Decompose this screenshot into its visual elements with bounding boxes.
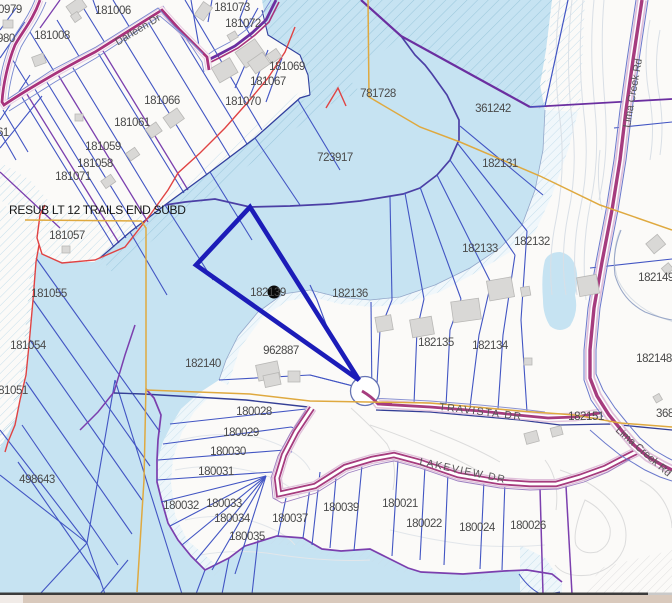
svg-text:181054: 181054: [10, 340, 47, 352]
svg-text:182132: 182132: [514, 236, 550, 248]
svg-text:181069: 181069: [269, 61, 305, 73]
svg-text:180961: 180961: [0, 127, 9, 139]
svg-text:180035: 180035: [229, 531, 265, 543]
svg-text:180028: 180028: [236, 406, 272, 418]
svg-text:361242: 361242: [475, 103, 511, 115]
svg-text:180030: 180030: [210, 446, 246, 458]
svg-text:181055: 181055: [31, 288, 67, 300]
svg-text:180039: 180039: [323, 502, 359, 514]
svg-text:180034: 180034: [214, 513, 251, 525]
svg-text:962887: 962887: [263, 345, 299, 357]
svg-text:180021: 180021: [382, 498, 418, 510]
svg-text:180031: 180031: [198, 466, 234, 478]
svg-text:182139: 182139: [250, 287, 286, 299]
svg-text:36842: 36842: [656, 408, 672, 420]
svg-text:181058: 181058: [77, 158, 113, 170]
svg-text:180032: 180032: [163, 500, 199, 512]
svg-text:180026: 180026: [510, 520, 546, 532]
svg-text:180979: 180979: [0, 4, 22, 16]
svg-text:RESUB LT 12 TRAILS END SUBD: RESUB LT 12 TRAILS END SUBD: [9, 203, 186, 217]
svg-text:182134: 182134: [472, 340, 509, 352]
svg-text:182136: 182136: [332, 288, 368, 300]
svg-text:180029: 180029: [223, 427, 259, 439]
svg-text:180037: 180037: [272, 513, 308, 525]
svg-text:181006: 181006: [95, 5, 131, 17]
svg-text:498643: 498643: [19, 474, 55, 486]
svg-text:182149: 182149: [638, 272, 672, 284]
svg-text:182131: 182131: [482, 158, 518, 170]
svg-text:181008: 181008: [34, 30, 70, 42]
svg-text:180033: 180033: [206, 498, 242, 510]
svg-text:180024: 180024: [459, 522, 496, 534]
svg-text:181059: 181059: [85, 141, 121, 153]
svg-text:181057: 181057: [49, 230, 85, 242]
svg-text:182135: 182135: [418, 337, 454, 349]
svg-text:181072: 181072: [225, 18, 261, 30]
svg-text:181073: 181073: [214, 2, 250, 14]
svg-text:723917: 723917: [317, 152, 353, 164]
svg-text:181061: 181061: [114, 117, 150, 129]
svg-text:181051: 181051: [0, 385, 28, 397]
svg-text:181066: 181066: [144, 95, 180, 107]
svg-text:180022: 180022: [406, 518, 442, 530]
svg-text:182140: 182140: [185, 358, 221, 370]
svg-text:181071: 181071: [55, 171, 91, 183]
svg-text:781728: 781728: [360, 88, 396, 100]
svg-text:182133: 182133: [462, 243, 498, 255]
svg-text:182151: 182151: [568, 411, 604, 423]
svg-text:180980: 180980: [0, 33, 15, 45]
svg-text:181070: 181070: [225, 96, 261, 108]
svg-text:181067: 181067: [250, 76, 286, 88]
svg-text:182148: 182148: [636, 353, 672, 365]
